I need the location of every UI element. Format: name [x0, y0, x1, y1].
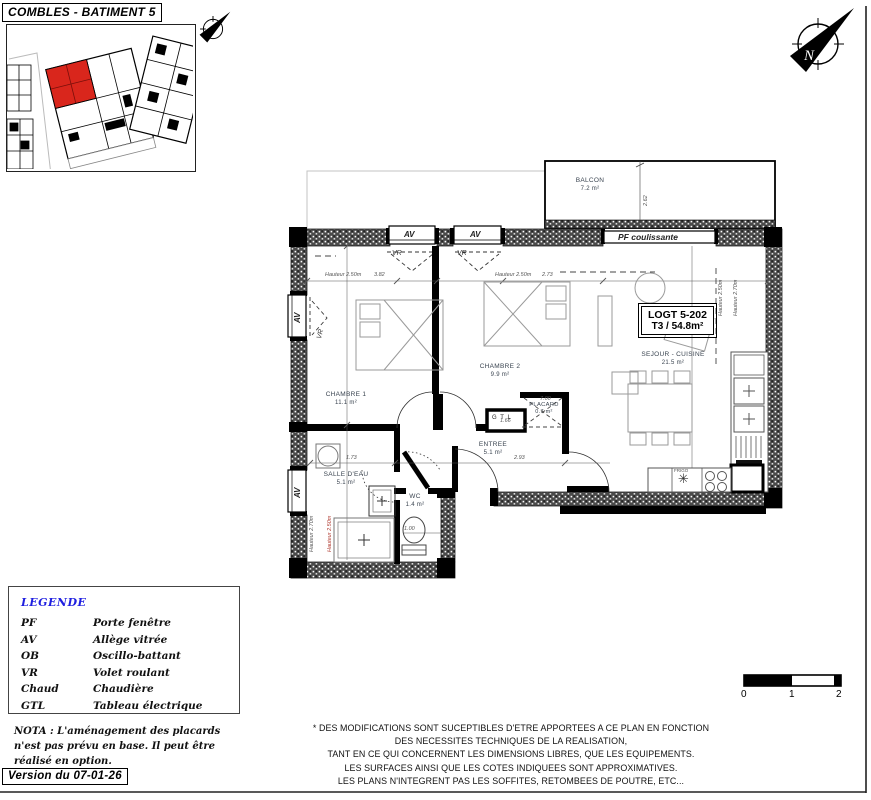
av-label-4: AV	[293, 487, 302, 498]
legend-box: LEGENDE PFPorte fenêtre AVAllège vitrée …	[8, 586, 240, 714]
scale-bar	[744, 675, 841, 686]
av-label-1: AV	[404, 230, 415, 239]
legend-row-gtl: GTLTableau électrique	[21, 700, 239, 712]
apartment-id: LOGT 5-202	[648, 309, 707, 321]
scale-tick-1: 1	[789, 689, 795, 700]
scale-tick-0: 0	[741, 689, 747, 700]
dim-text: 2.62	[643, 195, 649, 206]
scale-tick-2: 2	[836, 689, 842, 700]
dim-text: 2.73	[542, 272, 553, 278]
bed-furniture	[356, 282, 570, 370]
room-label-wc: WC1.4 m²	[392, 492, 438, 510]
site-plan-inset	[6, 24, 196, 172]
legend-row-av: AVAllège vitrée	[21, 634, 239, 646]
legend-row-vr: VRVolet roulant	[21, 667, 239, 679]
dim-text: 3.82	[374, 272, 385, 278]
site-plan-drawing	[7, 25, 193, 169]
legend-row-chaud: ChaudChaudière	[21, 683, 239, 695]
dim-text: 2.93	[514, 455, 525, 461]
dim-text: Hauteur 2.70m	[309, 516, 315, 552]
version-box: Version du 07-01-26	[2, 766, 128, 785]
room-label-chambre2: CHAMBRE 29.9 m²	[462, 362, 538, 380]
vr-label-2: VR	[457, 250, 467, 257]
version-label: Version du 07-01-26	[2, 768, 128, 785]
floor-plan-sheet: N	[0, 0, 871, 800]
legend-row-ob: OBOscillo-battant	[21, 650, 239, 662]
legend-title: LEGENDE	[21, 596, 239, 609]
av-label-3: AV	[293, 312, 302, 323]
north-arrow-small-icon	[200, 12, 231, 43]
room-label-sejour-cuisine: SEJOUR - CUISINE21.5 m²	[626, 350, 720, 368]
balcony-outline	[545, 161, 775, 228]
sheet-title: COMBLES - BATIMENT 5	[2, 3, 162, 22]
dim-text: Hauteur 2.50m	[495, 272, 531, 278]
snowflake-icon: ✳	[678, 472, 689, 487]
vr-indicators	[310, 252, 502, 338]
apartment-type-surface: T3 / 54.8m²	[648, 321, 707, 332]
room-label-balcon: BALCON7.2 m²	[555, 176, 625, 194]
dim-text: 1.00	[404, 526, 415, 532]
dim-text: 1.73	[346, 455, 357, 461]
room-label-salle-deau: SALLE D'EAU5.1 m²	[308, 470, 384, 488]
av-label-2: AV	[470, 230, 481, 239]
roof-outline	[307, 171, 545, 228]
room-label-placard: PLACARD0.7 m²	[522, 402, 566, 416]
dim-text: 7.00	[540, 396, 551, 402]
apartment-id-box: LOGT 5-202 T3 / 54.8m²	[641, 306, 714, 335]
pf-coulissante-label: PF coulissante	[618, 232, 678, 242]
vr-label-1: VR	[392, 250, 402, 257]
dim-text: 1.66	[500, 418, 511, 424]
dim-text: Hauteur 2.50m	[718, 280, 724, 316]
dim-text: Hauteur 2.70m	[733, 280, 739, 316]
north-arrow-icon: N	[790, 8, 854, 72]
kitchen-fixtures	[648, 352, 768, 492]
nota-note: NOTA : L'aménagement des placards n'est …	[14, 724, 244, 769]
dim-text: Hauteur 2.50m	[325, 272, 361, 278]
svg-text:N: N	[803, 48, 815, 64]
dim-text: Hauteur 2.50m	[327, 516, 333, 552]
room-label-chambre1: CHAMBRE 111.1 m²	[308, 390, 384, 408]
wc-door-leaf	[404, 452, 428, 488]
disclaimer-text: * DES MODIFICATIONS SONT SUCEPTIBLES D'E…	[285, 722, 737, 788]
legend-row-pf: PFPorte fenêtre	[21, 617, 239, 629]
